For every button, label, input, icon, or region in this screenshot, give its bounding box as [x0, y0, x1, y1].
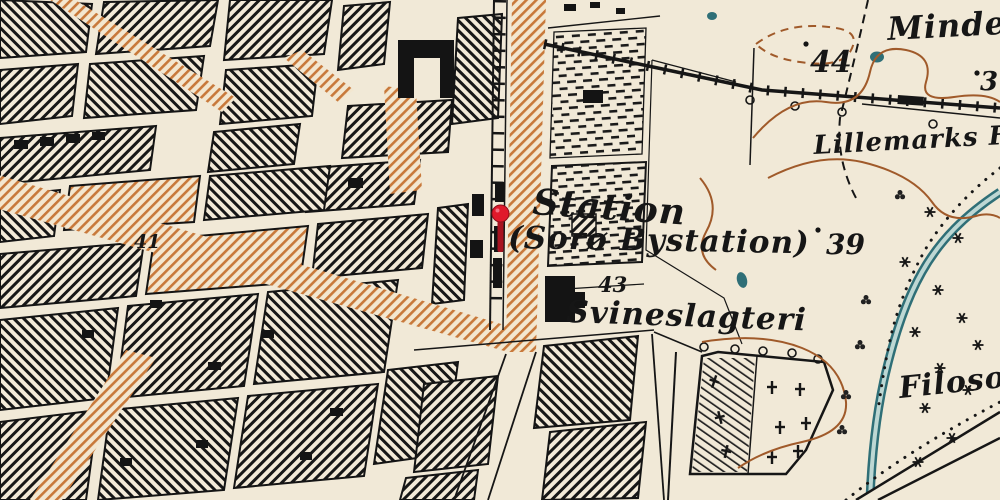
map-canvas[interactable]: Mindest443Lillemarks F39Station(Sorø Bys… — [0, 0, 1000, 500]
map-label-elev-39: 39 — [826, 228, 865, 261]
map-label-elev-41: 41 — [134, 231, 160, 253]
map-label-bystation: (Sorø Bystation) — [508, 220, 810, 261]
pin-highlight — [496, 209, 500, 213]
map-label-elev-3: 3 — [980, 67, 998, 97]
pond — [707, 12, 717, 20]
map-label-elev-44: 44 — [810, 45, 852, 80]
map-label-mindest: Mindest — [885, 2, 1000, 48]
map-viewport[interactable]: Mindest443Lillemarks F39Station(Sorø Bys… — [0, 0, 1000, 500]
map-label-elev-43: 43 — [598, 272, 627, 297]
